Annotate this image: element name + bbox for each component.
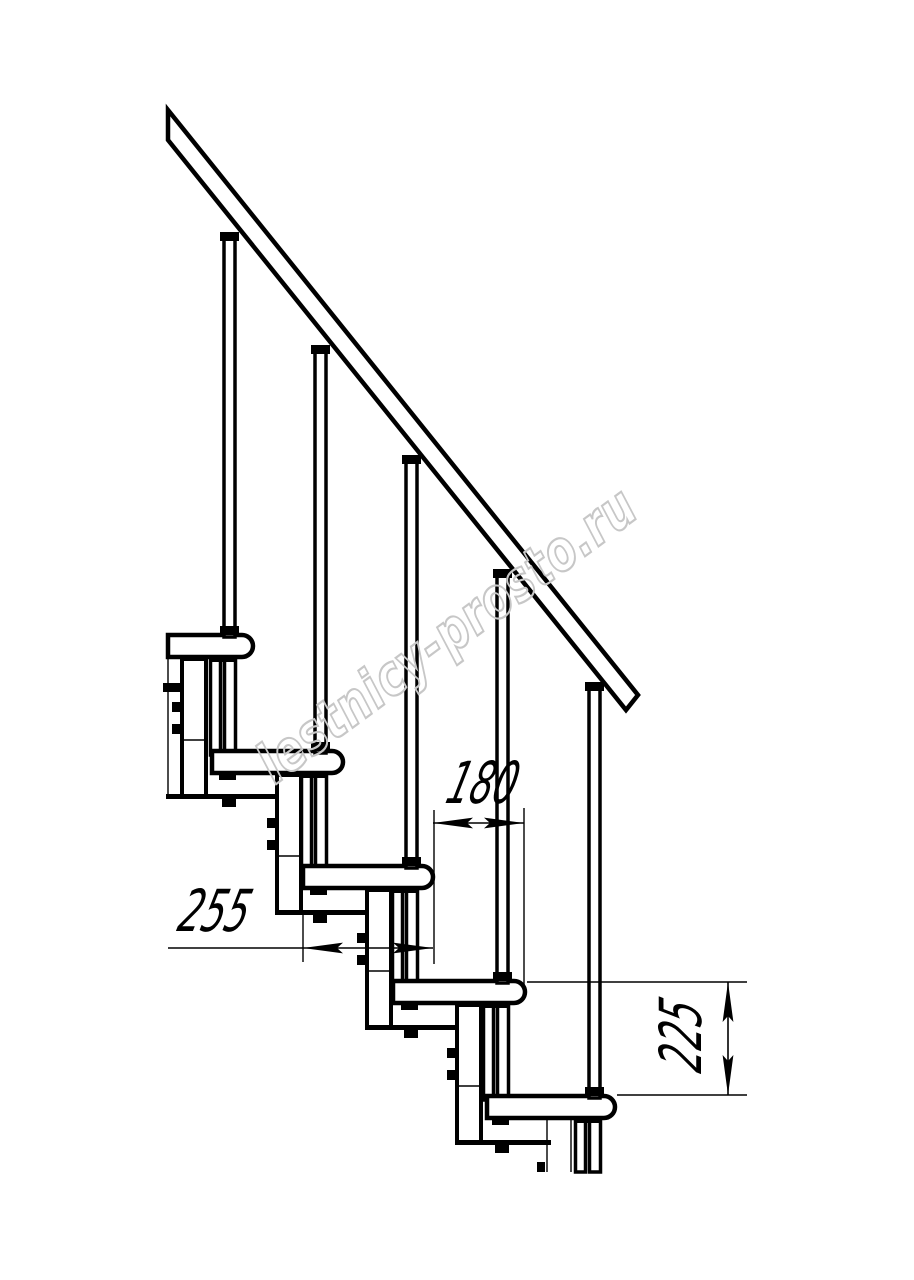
tube-flange [391, 886, 419, 893]
staircase-drawing: 255 180 225 lestnicy-prosto.ru [0, 0, 914, 1280]
dimension-step-run: 180 [433, 749, 527, 986]
tube [393, 880, 403, 985]
baluster-top-collar [585, 682, 604, 691]
under-tread-nut [219, 772, 236, 780]
baluster-base-collar [493, 972, 512, 981]
bolt-tab [172, 702, 180, 712]
tread-1 [168, 635, 253, 657]
module-column [277, 775, 301, 913]
tube [484, 995, 494, 1100]
base-plate [166, 794, 281, 799]
module-column [457, 1005, 481, 1143]
bolt-tab [163, 683, 180, 692]
bolt-tab [267, 840, 275, 850]
baluster-top-collar [311, 345, 330, 354]
base-plate [455, 1140, 551, 1145]
dim-arrow-left-icon [433, 818, 473, 829]
baluster-top-collar [402, 455, 421, 464]
dim-arrow-left-icon [303, 943, 343, 954]
bolt-tab [267, 818, 275, 828]
under-tread-nut [492, 1117, 509, 1125]
baluster-base-collar [585, 1087, 604, 1096]
tube [225, 649, 236, 755]
plate-nut [495, 1145, 509, 1153]
dimension-tread-depth-label: 255 [172, 877, 259, 945]
drawing-svg: 255 180 225 lestnicy-prosto.ru [0, 0, 914, 1280]
dimension-step-rise-label: 225 [647, 991, 715, 1078]
baluster-base-collar [220, 626, 239, 635]
module-column [367, 890, 391, 1028]
base-plate [365, 1025, 461, 1030]
dimension-step-run-label: 180 [440, 749, 527, 817]
bolt-tab [172, 724, 180, 734]
tube [498, 995, 509, 1100]
plate-nut [222, 799, 236, 807]
tube-flange [482, 1001, 510, 1008]
tube-flange [209, 655, 237, 662]
plate-nut [404, 1030, 418, 1038]
tube [316, 765, 327, 870]
dimension-step-rise: 225 [527, 982, 747, 1095]
bolt-tab [447, 1048, 455, 1058]
tube [211, 649, 221, 755]
module-column [182, 659, 206, 797]
base-plate [275, 910, 371, 915]
dim-arrow-up-icon [723, 982, 734, 1022]
bolt-tab [537, 1162, 545, 1172]
baluster-top-collar [220, 232, 239, 241]
under-tread-nut [310, 887, 327, 895]
baluster-1 [224, 239, 235, 637]
baluster-5 [589, 689, 600, 1098]
baluster-base-collar [402, 857, 421, 866]
tube-flange [574, 1116, 602, 1123]
bolt-tab [357, 933, 365, 943]
dim-arrow-down-icon [723, 1055, 734, 1095]
bolt-tab [447, 1070, 455, 1080]
tube [407, 880, 418, 985]
under-tread-nut [401, 1002, 418, 1010]
handrail [168, 110, 638, 710]
plate-nut [313, 915, 327, 923]
bolt-tab [357, 955, 365, 965]
